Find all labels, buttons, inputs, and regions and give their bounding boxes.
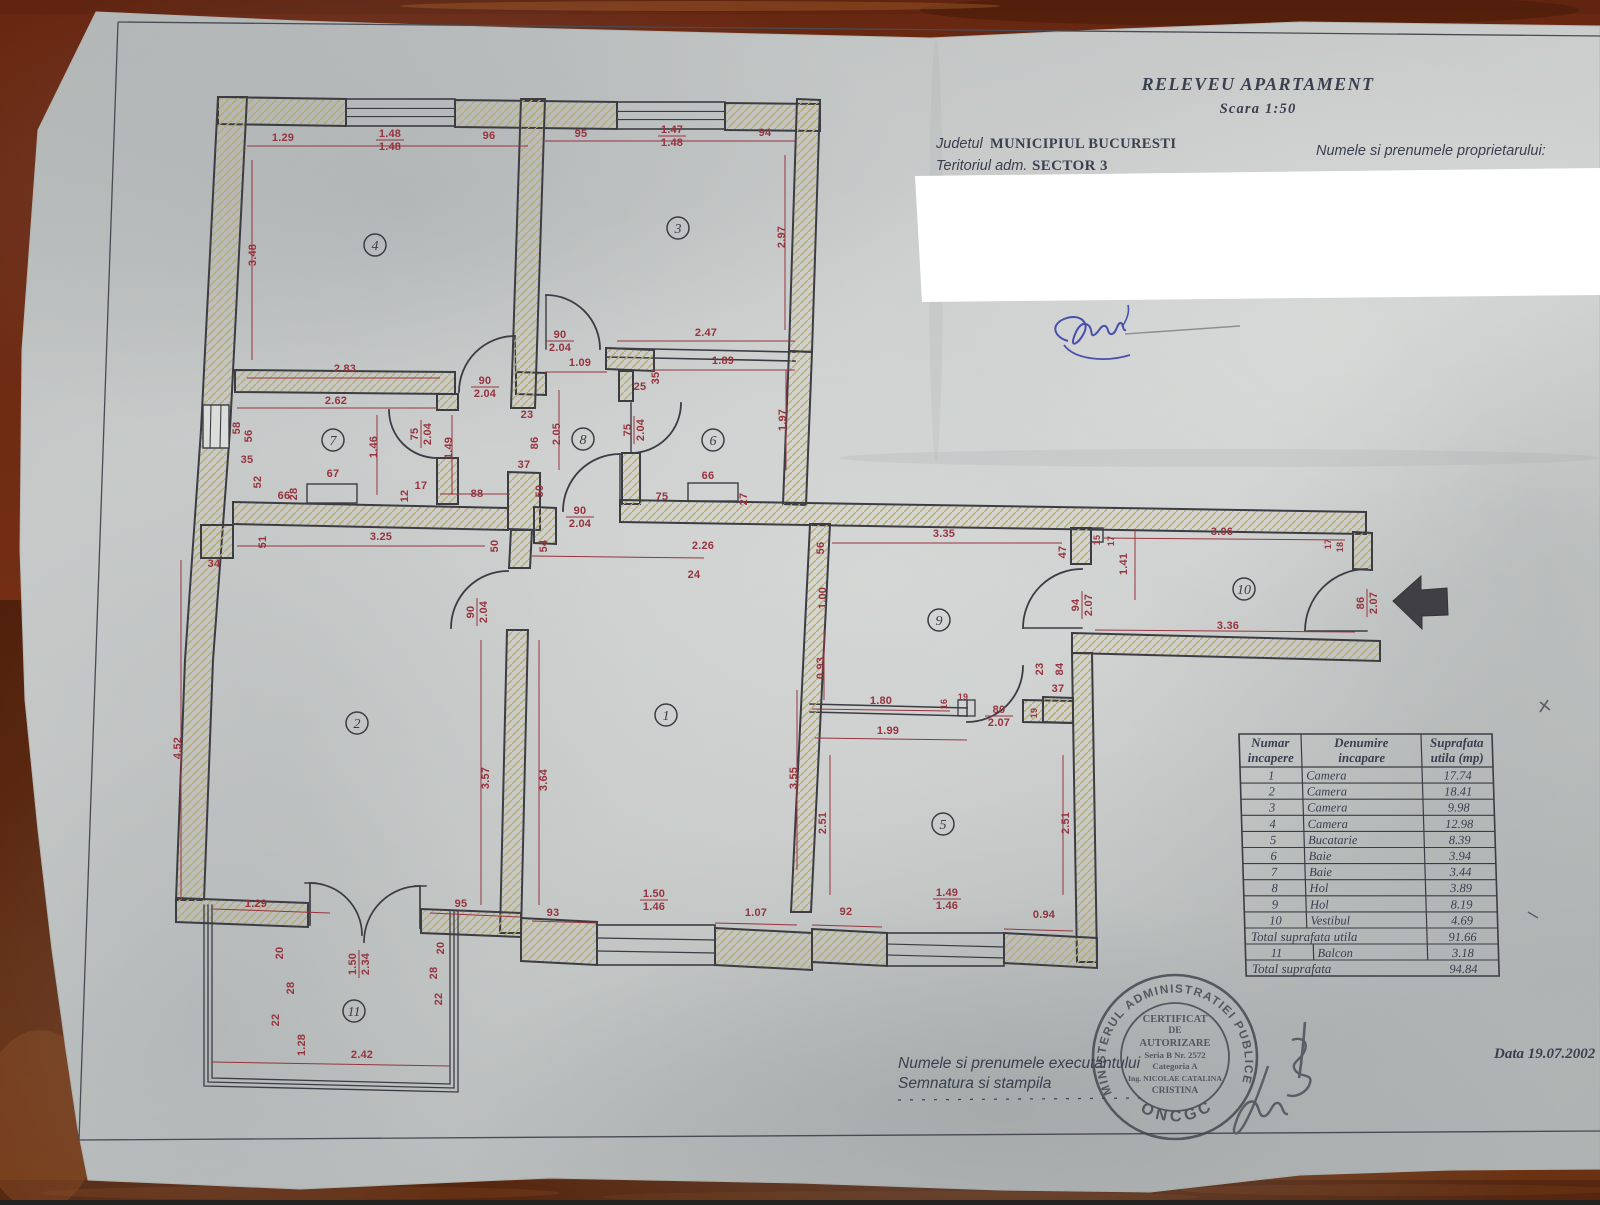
- svg-text:75: 75: [409, 428, 421, 441]
- svg-text:incapare: incapare: [1338, 750, 1386, 765]
- svg-text:1.41: 1.41: [1118, 553, 1130, 575]
- svg-text:utila (mp): utila (mp): [1430, 750, 1484, 765]
- svg-text:Scara 1:50: Scara 1:50: [1220, 101, 1297, 117]
- svg-text:CERTIFICAT: CERTIFICAT: [1143, 1014, 1208, 1025]
- svg-text:9: 9: [936, 614, 943, 629]
- svg-text:25: 25: [634, 381, 647, 393]
- svg-text:2.62: 2.62: [325, 395, 347, 407]
- svg-text:Bucatarie: Bucatarie: [1308, 833, 1358, 847]
- svg-text:6: 6: [1270, 849, 1277, 863]
- svg-text:19: 19: [1029, 708, 1039, 718]
- svg-text:28: 28: [285, 982, 297, 995]
- svg-text:Balcon: Balcon: [1317, 946, 1353, 960]
- svg-text:2.04: 2.04: [478, 600, 490, 623]
- svg-text:Categoria A: Categoria A: [1152, 1061, 1198, 1071]
- svg-text:37: 37: [518, 459, 531, 471]
- svg-text:2.47: 2.47: [695, 327, 717, 339]
- svg-text:2: 2: [354, 717, 361, 732]
- svg-text:incapere: incapere: [1247, 750, 1294, 765]
- svg-text:94.84: 94.84: [1449, 962, 1478, 976]
- svg-text:3.55: 3.55: [788, 767, 800, 789]
- svg-text:75: 75: [656, 491, 669, 503]
- svg-text:17: 17: [1323, 539, 1333, 549]
- svg-text:66: 66: [702, 470, 715, 482]
- svg-text:22: 22: [270, 1014, 282, 1027]
- svg-text:3.48: 3.48: [247, 244, 259, 266]
- svg-text:2: 2: [1268, 785, 1275, 799]
- svg-text:Suprafata: Suprafata: [1430, 735, 1484, 750]
- svg-text:24: 24: [688, 569, 701, 581]
- svg-text:3.94: 3.94: [1448, 849, 1471, 863]
- svg-text:Camera: Camera: [1307, 801, 1348, 815]
- svg-text:3: 3: [1268, 801, 1276, 815]
- svg-text:90: 90: [479, 375, 492, 387]
- svg-text:Ing. NICOLAE CATALINA: Ing. NICOLAE CATALINA: [1128, 1074, 1222, 1083]
- svg-text:Numar: Numar: [1250, 735, 1291, 750]
- svg-text:67: 67: [327, 468, 340, 480]
- svg-text:Baie: Baie: [1308, 849, 1332, 863]
- svg-text:5: 5: [1270, 833, 1277, 847]
- svg-text:3.89: 3.89: [1449, 881, 1473, 895]
- svg-text:2.07: 2.07: [1368, 592, 1380, 614]
- svg-text:11: 11: [348, 1005, 361, 1020]
- svg-text:18: 18: [1335, 542, 1345, 552]
- svg-text:Hol: Hol: [1308, 881, 1329, 895]
- svg-text:1.97: 1.97: [777, 409, 789, 431]
- svg-text:47: 47: [1057, 546, 1069, 559]
- svg-text:4: 4: [372, 239, 379, 254]
- svg-text:1: 1: [1268, 769, 1275, 783]
- svg-text:22: 22: [433, 993, 445, 1006]
- svg-text:3.18: 3.18: [1451, 946, 1475, 960]
- svg-text:16: 16: [939, 699, 949, 709]
- svg-text:3.35: 3.35: [933, 528, 955, 540]
- svg-text:Camera: Camera: [1307, 817, 1348, 831]
- svg-text:17: 17: [415, 480, 428, 492]
- svg-text:9: 9: [1272, 897, 1279, 911]
- svg-text:1.80: 1.80: [870, 695, 892, 707]
- svg-text:Camera: Camera: [1307, 785, 1348, 799]
- svg-text:35: 35: [241, 454, 254, 466]
- svg-text:2.07: 2.07: [1083, 594, 1095, 616]
- svg-text:2.97: 2.97: [776, 226, 788, 248]
- svg-text:2.42: 2.42: [351, 1049, 373, 1061]
- svg-text:DE: DE: [1168, 1026, 1181, 1036]
- svg-text:86: 86: [1355, 597, 1367, 610]
- svg-text:2.26: 2.26: [692, 540, 714, 552]
- svg-text:2.51: 2.51: [817, 812, 829, 834]
- svg-text:Camera: Camera: [1306, 769, 1347, 783]
- svg-text:94: 94: [1070, 598, 1082, 611]
- svg-text:1.28: 1.28: [296, 1034, 308, 1056]
- svg-text:1.48: 1.48: [379, 141, 401, 153]
- svg-text:2.05: 2.05: [551, 423, 563, 445]
- svg-text:Data 19.07.2002: Data 19.07.2002: [1493, 1046, 1596, 1062]
- svg-text:2.04: 2.04: [422, 422, 434, 445]
- svg-text:1.49: 1.49: [936, 887, 958, 899]
- svg-text:1.50: 1.50: [643, 888, 665, 900]
- svg-text:8.19: 8.19: [1450, 897, 1473, 911]
- svg-text:Hol: Hol: [1309, 897, 1330, 911]
- svg-text:SECTOR 3: SECTOR 3: [1032, 158, 1108, 174]
- svg-text:10: 10: [1237, 583, 1251, 598]
- svg-text:2.04: 2.04: [569, 518, 592, 530]
- svg-text:15: 15: [1092, 535, 1102, 545]
- svg-text:4.69: 4.69: [1451, 913, 1474, 927]
- svg-text:4: 4: [1269, 817, 1276, 831]
- svg-text:52: 52: [252, 476, 264, 489]
- svg-text:CRISTINA: CRISTINA: [1152, 1086, 1199, 1096]
- svg-text:18.41: 18.41: [1444, 785, 1473, 799]
- svg-text:3.06: 3.06: [1211, 526, 1233, 538]
- svg-text:Denumire: Denumire: [1333, 735, 1389, 750]
- svg-text:11: 11: [1271, 946, 1283, 960]
- svg-text:4.52: 4.52: [172, 737, 184, 759]
- svg-text:1.89: 1.89: [712, 355, 734, 367]
- svg-text:54: 54: [538, 539, 550, 552]
- svg-text:12.98: 12.98: [1445, 817, 1474, 831]
- svg-text:0.93: 0.93: [815, 657, 827, 679]
- svg-text:Total suprafata utila: Total suprafata utila: [1251, 929, 1358, 944]
- svg-text:94: 94: [759, 127, 772, 139]
- svg-text:51: 51: [257, 536, 269, 549]
- svg-text:Teritoriul adm.: Teritoriul adm.: [936, 158, 1027, 174]
- svg-text:34: 34: [208, 558, 221, 570]
- svg-text:1.99: 1.99: [877, 725, 899, 737]
- svg-text:9.98: 9.98: [1448, 801, 1471, 815]
- svg-text:19: 19: [958, 692, 968, 702]
- svg-text:8: 8: [1271, 881, 1278, 895]
- svg-text:1.00: 1.00: [817, 587, 829, 609]
- svg-text:5: 5: [940, 818, 947, 833]
- svg-text:3.36: 3.36: [1217, 620, 1239, 632]
- svg-text:28: 28: [428, 967, 440, 980]
- svg-text:37: 37: [1052, 683, 1065, 695]
- svg-text:50: 50: [489, 540, 501, 553]
- svg-text:AUTORIZARE: AUTORIZARE: [1140, 1038, 1211, 1049]
- svg-text:1: 1: [663, 709, 670, 724]
- svg-text:1.48: 1.48: [379, 128, 401, 140]
- svg-text:35: 35: [650, 372, 662, 385]
- svg-text:88: 88: [471, 488, 484, 500]
- svg-text:2.04: 2.04: [549, 342, 572, 354]
- svg-text:95: 95: [575, 128, 588, 140]
- svg-text:Seria B Nr. 2572: Seria B Nr. 2572: [1144, 1050, 1206, 1060]
- svg-text:96: 96: [483, 130, 496, 142]
- svg-text:Baie: Baie: [1309, 865, 1333, 879]
- svg-text:17: 17: [1106, 536, 1116, 546]
- svg-text:84: 84: [1054, 662, 1066, 675]
- svg-text:90: 90: [554, 329, 567, 341]
- svg-text:3.64: 3.64: [538, 768, 550, 791]
- svg-text:Numele si prenumele proprietar: Numele si prenumele proprietarului:: [1316, 143, 1546, 159]
- svg-text:1.48: 1.48: [661, 137, 683, 149]
- svg-text:1.29: 1.29: [272, 132, 294, 144]
- svg-text:93: 93: [547, 907, 560, 919]
- svg-text:58: 58: [231, 422, 243, 435]
- svg-text:1.07: 1.07: [745, 907, 767, 919]
- svg-text:90: 90: [465, 606, 477, 619]
- svg-text:91.66: 91.66: [1448, 930, 1477, 944]
- svg-text:17.74: 17.74: [1443, 769, 1472, 783]
- svg-text:23: 23: [521, 409, 534, 421]
- svg-text:0.94: 0.94: [1033, 909, 1056, 921]
- svg-text:1.46: 1.46: [643, 901, 665, 913]
- svg-text:56: 56: [243, 430, 255, 443]
- svg-text:2.83: 2.83: [334, 363, 356, 375]
- svg-text:Total suprafata: Total suprafata: [1252, 961, 1332, 976]
- svg-text:Vestibul: Vestibul: [1310, 913, 1351, 927]
- svg-text:86: 86: [529, 437, 541, 450]
- svg-text:50: 50: [534, 485, 546, 498]
- svg-text:1.46: 1.46: [368, 436, 380, 458]
- svg-text:90: 90: [574, 505, 587, 517]
- svg-text:2.04: 2.04: [474, 388, 497, 400]
- svg-text:1.46: 1.46: [936, 900, 958, 912]
- svg-text:12: 12: [399, 490, 411, 503]
- svg-text:7: 7: [1271, 865, 1278, 879]
- svg-text:95: 95: [455, 898, 468, 910]
- svg-text:2.04: 2.04: [635, 418, 647, 441]
- svg-text:10: 10: [1269, 913, 1283, 927]
- svg-text:1.29: 1.29: [245, 898, 267, 910]
- svg-text:MUNICIPIUL BUCURESTI: MUNICIPIUL BUCURESTI: [990, 136, 1176, 152]
- svg-text:2.07: 2.07: [988, 717, 1010, 729]
- svg-text:92: 92: [840, 906, 853, 918]
- svg-text:27: 27: [738, 493, 750, 506]
- svg-text:1.47: 1.47: [661, 124, 683, 136]
- svg-text:2.34: 2.34: [360, 952, 372, 975]
- svg-text:3.57: 3.57: [480, 767, 492, 789]
- svg-text:1.09: 1.09: [569, 357, 591, 369]
- svg-text:2.51: 2.51: [1060, 812, 1072, 834]
- svg-text:3.25: 3.25: [370, 531, 392, 543]
- svg-text:56: 56: [815, 542, 827, 555]
- svg-text:3.44: 3.44: [1448, 865, 1471, 879]
- svg-text:RELEVEU APARTAMENT: RELEVEU APARTAMENT: [1141, 74, 1375, 94]
- svg-text:23: 23: [1034, 663, 1046, 676]
- svg-text:80: 80: [993, 704, 1006, 716]
- svg-text:7: 7: [330, 434, 338, 449]
- svg-text:20: 20: [435, 942, 447, 955]
- svg-text:Semnatura si stampila: Semnatura si stampila: [898, 1075, 1052, 1092]
- svg-text:75: 75: [622, 424, 634, 437]
- svg-text:28: 28: [288, 488, 300, 501]
- svg-text:Judetul: Judetul: [935, 136, 984, 152]
- svg-text:3: 3: [674, 222, 682, 237]
- svg-text:8.39: 8.39: [1449, 833, 1472, 847]
- svg-text:1.49: 1.49: [443, 437, 455, 459]
- svg-text:8: 8: [580, 433, 587, 448]
- svg-text:1.50: 1.50: [347, 953, 359, 975]
- svg-text:6: 6: [710, 434, 717, 449]
- svg-text:20: 20: [274, 947, 286, 960]
